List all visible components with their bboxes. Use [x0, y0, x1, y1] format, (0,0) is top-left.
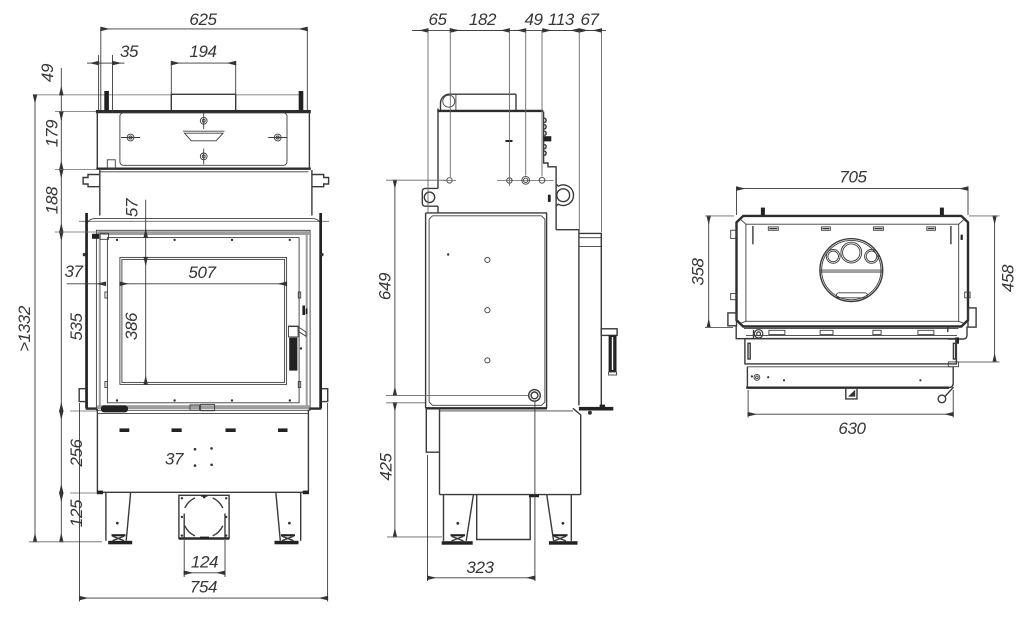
- svg-text:67: 67: [580, 10, 599, 29]
- svg-text:625: 625: [189, 10, 217, 29]
- svg-text:535: 535: [67, 312, 86, 340]
- svg-text:125: 125: [67, 499, 86, 527]
- svg-text:113: 113: [548, 10, 575, 29]
- svg-text:386: 386: [122, 312, 141, 340]
- svg-text:182: 182: [469, 10, 497, 29]
- svg-text:194: 194: [189, 42, 216, 61]
- svg-text:425: 425: [377, 452, 396, 480]
- svg-text:705: 705: [839, 168, 867, 187]
- svg-text:65: 65: [428, 10, 447, 29]
- svg-text:57: 57: [123, 198, 142, 217]
- svg-text:507: 507: [188, 263, 216, 282]
- svg-text:124: 124: [191, 553, 218, 572]
- svg-text:49: 49: [38, 63, 57, 82]
- svg-text:188: 188: [43, 186, 62, 214]
- svg-text:358: 358: [689, 257, 708, 285]
- svg-text:649: 649: [376, 272, 395, 300]
- svg-text:458: 458: [999, 264, 1018, 292]
- svg-text:37: 37: [64, 262, 83, 281]
- svg-text:256: 256: [67, 438, 86, 467]
- svg-text:179: 179: [43, 119, 62, 147]
- svg-text:>1332: >1332: [15, 305, 34, 352]
- svg-text:323: 323: [466, 558, 494, 577]
- svg-text:630: 630: [838, 419, 866, 438]
- svg-text:754: 754: [190, 578, 217, 597]
- svg-text:49: 49: [524, 10, 543, 29]
- svg-text:35: 35: [120, 42, 139, 61]
- svg-text:37: 37: [165, 450, 184, 469]
